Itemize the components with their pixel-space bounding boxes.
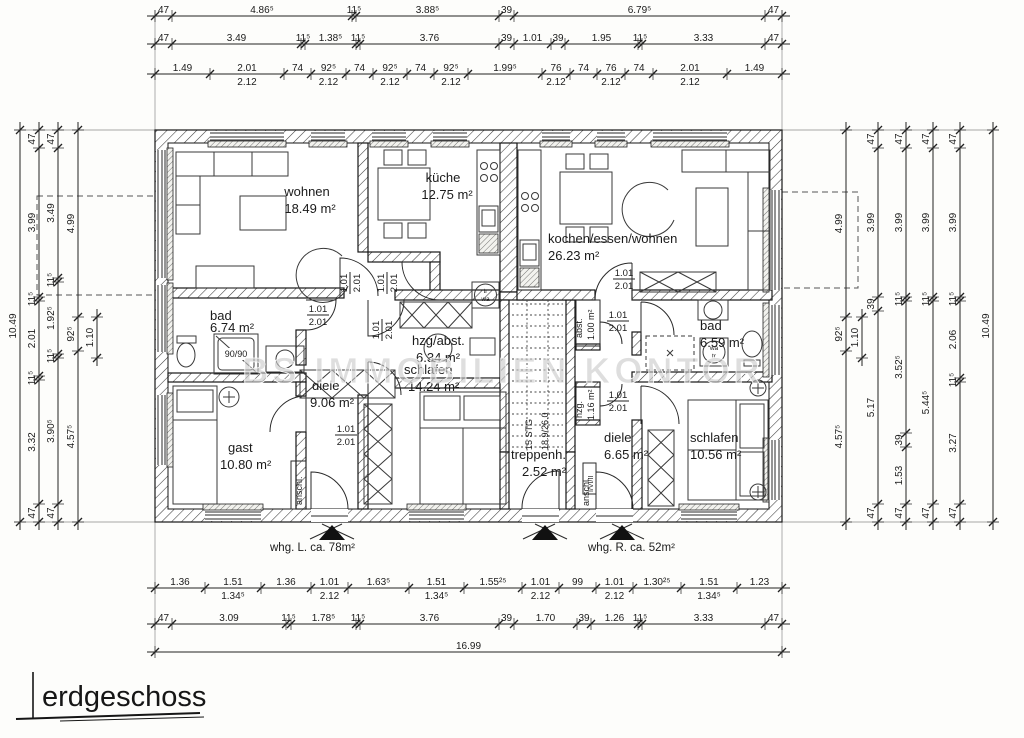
door-label: 2.01 [337, 437, 356, 448]
dim-label: 47 [894, 133, 905, 145]
dim-label: 3.99 [948, 212, 959, 232]
dim-label: 11⁵ [633, 613, 648, 624]
door-label: 2.01 [384, 321, 395, 340]
dim-label: 11⁵ [281, 613, 296, 624]
dim-label: 16.99 [456, 641, 481, 652]
dim-label: 11⁵ [633, 33, 648, 44]
dim-label: 11⁵ [27, 371, 38, 386]
dim-label: 47 [866, 133, 877, 145]
dim-label: 5.17 [866, 397, 877, 417]
dim-label: 6.79⁵ [628, 5, 652, 16]
dim-label: 3.49 [46, 203, 57, 223]
dim-label: 1.10 [85, 327, 96, 347]
apartment-left-label: whg. L. ca. 78m² [269, 542, 355, 554]
room-label-bad-r: bad [700, 318, 722, 333]
dim-label: 2.12 [601, 77, 621, 88]
apartment-right-label: whg. R. ca. 52m² [587, 542, 675, 554]
dim-label: 1.34⁵ [697, 591, 721, 602]
dim-label: 4.86⁵ [250, 5, 274, 16]
floor-plan-sheet: wohnen 18.49 m² küche 12.75 m² kochen/es… [0, 0, 1024, 738]
dim-label: 2.12 [380, 77, 400, 88]
dim-label: 3.09 [219, 613, 239, 624]
dim-label: 11⁵ [347, 5, 362, 16]
dim-label: 2.12 [441, 77, 461, 88]
dim-label: 2.06 [948, 329, 959, 349]
room-area-bad-r: 6.59 m² [700, 335, 745, 350]
dim-label: 11⁵ [948, 373, 959, 388]
room-label-hzg-abst: hzg/abst. [412, 333, 465, 348]
dim-label: 92⁵ [443, 63, 458, 74]
room-area-gast: 10.80 m² [220, 457, 272, 472]
door-label: 2.01 [389, 274, 400, 293]
dim-label: 3.99 [894, 212, 905, 232]
dim-label: 11⁵ [921, 292, 932, 307]
room-area-kueche: 12.75 m² [421, 187, 473, 202]
dim-label: 10.49 [981, 313, 992, 338]
dim-label: 3.27 [948, 433, 959, 453]
dim-label: 4.57⁵ [66, 425, 77, 449]
dim-label: 2.12 [546, 77, 566, 88]
dim-label: 1.63⁵ [367, 577, 391, 588]
dim-label: 2.01 [27, 328, 38, 348]
dim-label: 1.78⁵ [312, 613, 336, 624]
dim-label: 3.99 [866, 212, 877, 232]
room-area-abst-r: 1.00 m² [586, 309, 596, 340]
dim-label: 74 [292, 63, 304, 74]
stair-steps-label: 15 STG [524, 419, 534, 450]
dim-label: 74 [354, 63, 366, 74]
room-area-kochen: 26.23 m² [548, 248, 600, 263]
door-label: 2.01 [309, 317, 328, 328]
dim-label: 11⁵ [948, 292, 959, 307]
dim-label: 47 [158, 613, 170, 624]
dim-label: 1.34⁵ [425, 591, 449, 602]
dim-label: 3.90⁵ [46, 419, 57, 443]
dim-label: 47 [27, 507, 38, 519]
room-label-schlafen-r: schlafen [690, 430, 738, 445]
dim-label: 1.51 [427, 577, 447, 588]
dim-label: 3.76 [420, 33, 440, 44]
room-label-abst-r: abst. [574, 318, 584, 338]
room-label-diele-r: diele [604, 430, 631, 445]
dim-label: 74 [415, 63, 427, 74]
anschl-right-sub: I/VI/II [588, 476, 595, 492]
dim-label: 47 [46, 133, 57, 145]
dim-label: 47 [46, 507, 57, 519]
dim-label: 11⁵ [46, 349, 57, 364]
dim-label: 47 [768, 613, 780, 624]
dim-label: 1.01 [605, 577, 625, 588]
dim-label: 3.88⁵ [416, 5, 440, 16]
dim-label: 47 [158, 33, 170, 44]
door-label: 1.01 [371, 321, 382, 340]
dim-label: 76 [550, 63, 562, 74]
room-area-diele-r: 6.65 m² [604, 447, 649, 462]
dim-label: 2.12 [605, 591, 625, 602]
dim-label: 47 [768, 33, 780, 44]
dim-label: 11⁵ [351, 613, 366, 624]
dim-label: 2.12 [680, 77, 700, 88]
dim-label: 1.34⁵ [221, 591, 245, 602]
door-label: 2.01 [609, 323, 628, 334]
dim-label: 3.49 [227, 33, 247, 44]
door-label: 1.01 [337, 424, 356, 435]
dim-label: 3.99 [27, 212, 38, 232]
dim-label: 47 [27, 133, 38, 145]
dim-label: 39 [578, 613, 590, 624]
dim-label: 1.95 [592, 33, 612, 44]
door-label: 1.01 [339, 274, 350, 293]
dim-label: 11⁵ [894, 292, 905, 307]
dim-label: 3.52⁵ [894, 355, 905, 379]
dim-label: 5.44⁵ [921, 391, 932, 415]
dim-label: 11⁵ [46, 273, 57, 288]
dim-label: 47 [866, 507, 877, 519]
dim-label: 11⁵ [27, 292, 38, 307]
dim-label: 11⁵ [296, 33, 311, 44]
dim-label: 3.32 [27, 432, 38, 452]
dim-label: 1.36 [276, 577, 296, 588]
dim-label: 1.01 [523, 33, 543, 44]
dim-label: 74 [578, 63, 590, 74]
dim-label: 2.12 [531, 591, 551, 602]
dim-label: 11⁵ [351, 33, 366, 44]
dim-label: 39 [894, 434, 905, 446]
anschl-left-label: anschl. [294, 476, 304, 505]
dim-label: 4.99 [66, 213, 77, 233]
door-label: 1.01 [609, 390, 628, 401]
dim-label: 1.01 [531, 577, 551, 588]
dim-label: 39 [866, 298, 877, 310]
dim-label: 1.53 [894, 465, 905, 485]
dim-label: 10.49 [8, 313, 19, 338]
dim-label: 4.57⁵ [834, 425, 845, 449]
dim-label: 1.30²⁵ [644, 577, 671, 588]
dim-label: 1.26 [605, 613, 625, 624]
room-label-hzg-r: hzg. [574, 401, 584, 418]
dim-label: 1.99⁵ [493, 63, 517, 74]
room-area-diele-l: 9.06 m² [310, 395, 355, 410]
dim-label: 1.49 [173, 63, 193, 74]
dim-label: 2.12 [237, 77, 257, 88]
dim-label: 1.23 [750, 577, 770, 588]
room-label-wohnen: wohnen [283, 184, 330, 199]
dim-label: 2.12 [320, 591, 340, 602]
room-label-gast: gast [228, 440, 253, 455]
dim-label: 3.76 [420, 613, 440, 624]
dim-label: 47 [948, 507, 959, 519]
stair-ratio-label: 18.9/26.0 [540, 412, 550, 450]
door-label: 2.01 [615, 281, 634, 292]
dim-label: 99 [572, 577, 584, 588]
dim-label: 2.12 [319, 77, 339, 88]
room-label-kochen: kochen/essen/wohnen [548, 231, 677, 246]
dim-label: 47 [894, 507, 905, 519]
dim-label: 47 [768, 5, 780, 16]
room-label-kueche: küche [426, 170, 461, 185]
dim-label: 47 [158, 5, 170, 16]
door-label: 1.01 [609, 310, 628, 321]
page-title: erdgeschoss [42, 681, 206, 713]
door-label: 2.01 [609, 403, 628, 414]
dim-label: 92⁵ [66, 326, 77, 341]
dim-label: 76 [605, 63, 617, 74]
room-label-treppenh: treppenh. [511, 447, 566, 462]
dim-label: 92⁵ [382, 63, 397, 74]
dim-label: 47 [948, 133, 959, 145]
dim-label: 92⁵ [321, 63, 336, 74]
dim-label: 1.70 [536, 613, 556, 624]
room-area-schlafen-r: 10.56 m² [690, 447, 742, 462]
room-area-wohnen: 18.49 m² [284, 201, 336, 216]
dim-label: 47 [921, 507, 932, 519]
door-label: 1.01 [376, 274, 387, 293]
floor-plan-drawing: wohnen 18.49 m² küche 12.75 m² kochen/es… [0, 0, 1024, 738]
dim-label: 1.51 [699, 577, 719, 588]
dim-label: 39 [501, 33, 513, 44]
watermark: BS IMMOBILIEN KONTOR [242, 350, 763, 391]
dim-label: 74 [633, 63, 645, 74]
dim-label: 39 [501, 5, 513, 16]
dim-label: 2.01 [237, 63, 257, 74]
dim-label: 3.33 [694, 33, 714, 44]
dim-label: 1.55²⁵ [480, 577, 507, 588]
dim-label: 92⁵ [834, 326, 845, 341]
room-area-hzg-r: 1.16 m² [586, 389, 596, 420]
dim-label: 1.49 [745, 63, 765, 74]
dim-label: 2.01 [680, 63, 700, 74]
dim-label: 1.01 [320, 577, 340, 588]
wa-label-left: wa [480, 296, 490, 303]
room-area-treppenh: 2.52 m² [522, 464, 567, 479]
dim-label: 1.38⁵ [319, 33, 343, 44]
dim-label: 1.92⁵ [46, 306, 57, 330]
dim-label: 39 [501, 613, 513, 624]
dim-label: 4.99 [834, 213, 845, 233]
dim-label: 47 [921, 133, 932, 145]
room-area-bad-l: 6.74 m² [210, 320, 255, 335]
dim-label: 3.99 [921, 212, 932, 232]
dim-label: 1.36 [170, 577, 190, 588]
dim-label: 39 [552, 33, 564, 44]
door-label: 1.01 [615, 268, 634, 279]
door-label: 2.01 [352, 274, 363, 293]
dim-label: 1.51 [223, 577, 243, 588]
door-label: 1.01 [309, 304, 328, 315]
dim-label: 3.33 [694, 613, 714, 624]
dim-label: 1.10 [850, 327, 861, 347]
